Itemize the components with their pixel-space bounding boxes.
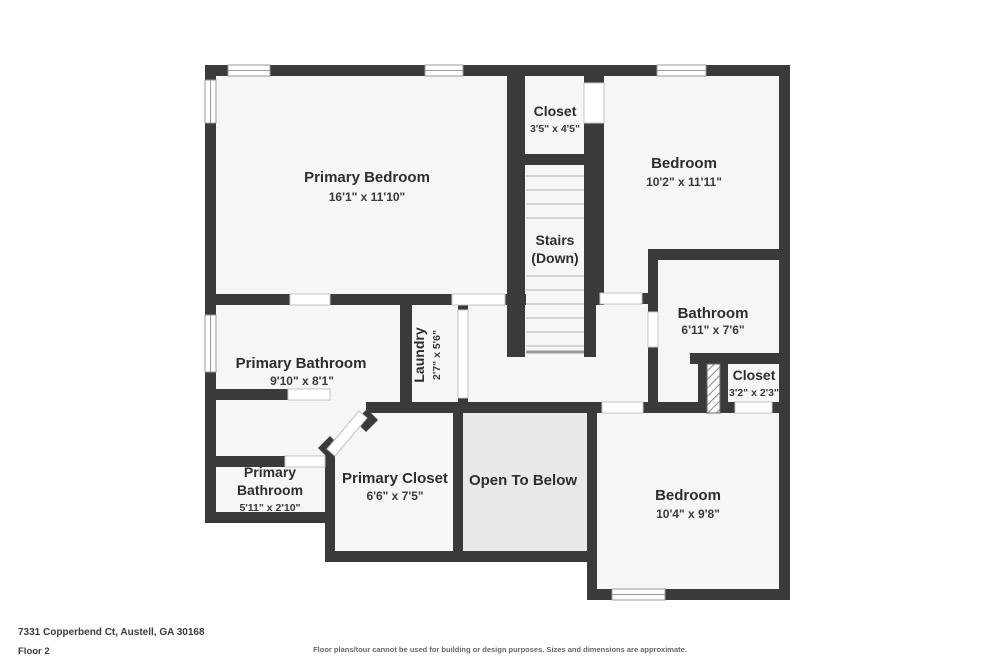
room-label: Bedroom [651, 155, 717, 172]
room-label: Primary Bathroom [236, 355, 367, 372]
floorplan-drawing: Primary Bedroom 16'1" x 11'10" Closet 3'… [0, 0, 1000, 667]
room-dims: 3'5" x 4'5" [530, 123, 580, 135]
room-primary-bathroom-small: Primary Bathroom 5'11" x 2'10" [237, 464, 303, 514]
disclaimer-text: Floor plans/tour cannot be used for buil… [0, 645, 1000, 654]
room-dims: 6'11" x 7'6" [681, 323, 744, 337]
room-dims: 9'10" x 8'1" [270, 374, 334, 388]
floorplan-page: Primary Bedroom 16'1" x 11'10" Closet 3'… [0, 0, 1000, 667]
room-label: Laundry [411, 327, 427, 382]
room-dims: 3'2" x 2'3" [729, 387, 779, 399]
room-bathroom: Bathroom 6'11" x 7'6" [678, 305, 749, 337]
room-label: Bathroom [678, 305, 749, 322]
room-dims: 16'1" x 11'10" [329, 190, 405, 204]
room-dims: 2'7" x 5'6" [431, 330, 443, 380]
room-label: Closet [534, 103, 577, 119]
room-label: Primary Bedroom [304, 169, 430, 186]
property-address: 7331 Copperbend Ct, Austell, GA 30168 [18, 627, 205, 638]
room-label: Primary Closet [342, 470, 448, 487]
stairs-label-line2: (Down) [531, 250, 578, 266]
room-label: Open To Below [469, 472, 577, 489]
stairs-label-line1: Stairs [536, 232, 575, 248]
room-dims: 10'2" x 11'11" [646, 175, 722, 189]
room-label: Bedroom [655, 487, 721, 504]
room-label-line1: Primary [244, 464, 296, 480]
room-label-line2: Bathroom [237, 482, 303, 498]
room-dims: 10'4" x 9'8" [656, 507, 720, 521]
shaft-hatch [707, 364, 720, 413]
room-dims: 6'6" x 7'5" [366, 489, 423, 503]
room-dims: 5'11" x 2'10" [239, 502, 300, 514]
room-label: Closet [733, 367, 776, 383]
room-open-to-below: Open To Below [469, 472, 577, 489]
